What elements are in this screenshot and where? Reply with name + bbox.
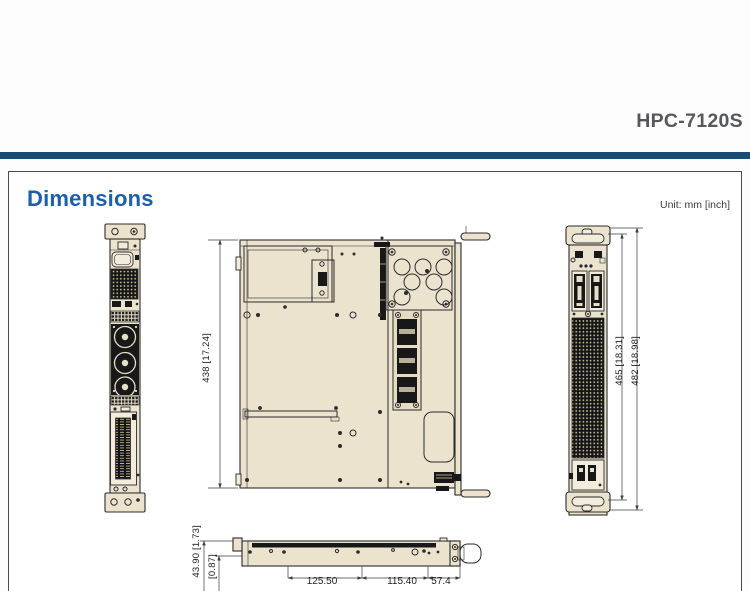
handle-rod-top <box>461 226 490 240</box>
front-face-plate <box>455 243 461 495</box>
rear-plate <box>450 541 460 566</box>
depth-dimension-lines <box>208 240 238 488</box>
swap-module-right <box>589 271 604 311</box>
dimension-label-width-2: 115.40 <box>382 576 422 587</box>
section-title: Dimensions <box>27 186 154 212</box>
datasheet-page: HPC-7120S Dimensions Unit: mm [inch] <box>0 0 750 591</box>
dimension-label-width-1: 125.50 <box>300 576 344 587</box>
handle-rod-bottom <box>461 490 490 497</box>
rear-panel-drawing <box>560 222 656 520</box>
fan-module-column <box>393 310 421 410</box>
vent-mesh <box>111 269 138 299</box>
unit-note: Unit: mm [inch] <box>660 199 730 211</box>
front-panel-drawing <box>101 223 149 519</box>
swap-module-left <box>572 271 587 311</box>
dimension-label-side-height: 43.90 [1.73] <box>191 525 202 578</box>
side-notch-top <box>236 257 241 270</box>
dimension-label-height-inner: 465 [18.31] <box>614 336 625 386</box>
side-notch-bottom <box>236 474 241 485</box>
top-bump <box>440 538 447 541</box>
grille-strip <box>111 311 139 322</box>
side-view-drawing <box>186 528 506 591</box>
fan-stack <box>111 324 139 397</box>
dimension-label-height-overall: 482 [18.98] <box>630 336 641 386</box>
handle-bottom <box>566 492 610 512</box>
page-title: HPC-7120S <box>636 110 743 133</box>
io-section <box>569 460 604 490</box>
dimension-label-depth: 438 [17.24] <box>201 333 212 383</box>
header-rule <box>0 152 750 159</box>
front-lip <box>233 538 242 551</box>
handle-top <box>566 226 610 245</box>
chassis-outline <box>240 240 455 488</box>
side-rail-groove <box>252 543 436 548</box>
top-view-drawing <box>196 224 500 510</box>
rear-handle <box>458 544 481 563</box>
mounting-ear-top <box>105 224 145 239</box>
backplane-connector <box>111 407 140 485</box>
grille-strip-2 <box>111 396 139 405</box>
vent-mesh <box>572 318 604 458</box>
dimension-label-width-3: 57.4 <box>427 576 455 587</box>
dimension-label-side-offset: [0.87] <box>207 554 218 579</box>
